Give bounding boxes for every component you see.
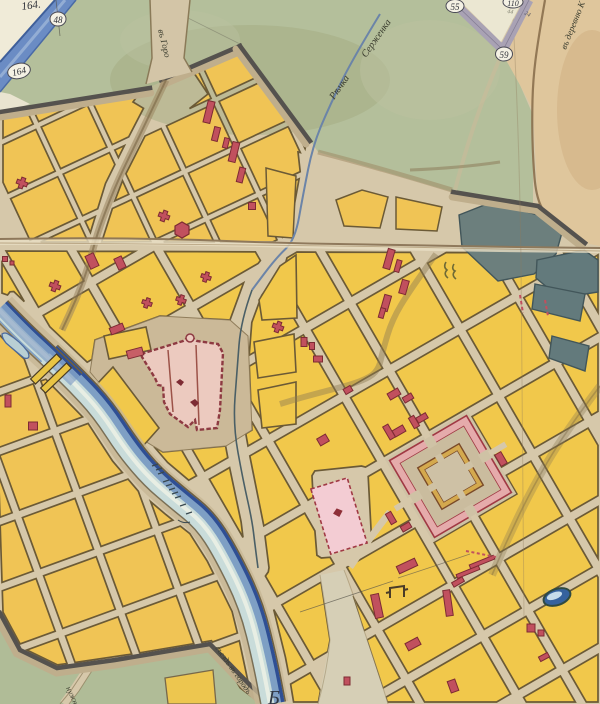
svg-text:59: 59 bbox=[500, 50, 510, 60]
svg-text:48: 48 bbox=[54, 15, 64, 25]
svg-text:44: 44 bbox=[507, 8, 514, 16]
svg-text:55: 55 bbox=[451, 2, 461, 12]
svg-text:Б: Б bbox=[267, 687, 280, 704]
svg-text:110: 110 bbox=[507, 0, 518, 8]
